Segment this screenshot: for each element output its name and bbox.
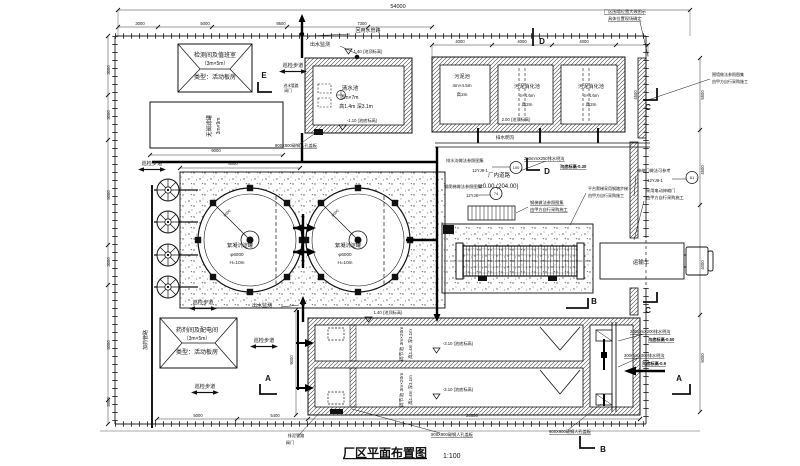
walkway-label: 巡检步道 [254,336,275,344]
elev: 2.00 (池顶标高) [502,116,531,123]
callout-atlas: 12YJ8 [466,193,479,198]
building-monitor-room-size: （3m×5m） [202,61,229,67]
building-chem-room-name: 药剂间及配电间 [176,326,218,334]
clearwater-size: 5m×7m [342,95,359,101]
dim: 5000 [106,340,111,350]
digester-1-h: 高2m [522,101,533,108]
eq-basin-2-size: 高1.4m 深3.1m [407,375,414,405]
dim: 8000 [228,161,238,166]
walkway-label: 巡检步道 [193,298,214,306]
dim-overall: 54000 [390,4,405,10]
dim: 3000 [106,65,111,75]
clarifier-1-h: H=10m [230,260,245,265]
note: 由甲方自行采购施工 [646,194,684,201]
note: 由甲方自行采购施工 [530,206,568,213]
digester-1-name: 污泥消化池 [514,82,540,90]
digester-1-size: 4×4.6m [519,93,535,98]
drain-elev: 沟底标高-0.50 [648,336,675,343]
clearwater-name: 清水池 [342,84,359,92]
sludge-tank-size: 4m×4.5m [452,83,471,88]
manhole-callout: 900X900碳钢人孔盖板 [549,428,592,435]
elev: -3.10 (池底标高) [443,386,474,393]
mud-outlet [330,409,343,414]
reuse-pipe-label: 回用水管路 [355,27,380,34]
monitor-point [301,301,306,306]
drain-callout: 200mmX200排水明沟 [630,328,671,335]
note: 采用电动伸缩门 [646,187,675,194]
dim: 9000 [289,355,294,365]
note: 钢梯做法参照图集 [530,199,564,206]
dim: 20000 [466,413,478,418]
manhole-callout: 900X900碳钢人孔盖板 [275,142,318,149]
dim: 7300 [357,21,367,26]
walkway-label: 巡检步道 [195,382,216,390]
walkway-arrow [191,390,197,395]
clarifier-1-dia: φ6000 [230,252,244,257]
dim: 3000 [135,21,145,26]
open-drain [435,143,650,147]
section-marker: A [676,374,682,383]
drain-elev: 沟底标高-0.9 [642,360,667,367]
section-marker: C [645,103,651,112]
building-chem-room-type: 类型：活动板房 [176,348,218,356]
dim: 5000 [200,21,210,26]
clarifier-2-name: 絮凝沉淀罐 [335,241,361,249]
eq-basin-1-size: 高1.4m 深3.1m [407,329,414,359]
valve-label: 阀门 [284,88,292,93]
section-marker: D [544,167,550,176]
digester-2-h: 高2m [586,101,597,108]
dim: 5400 [270,413,280,418]
walkway-arrow [250,344,256,349]
section-marker: B [600,445,606,454]
dim: 5000 [106,190,111,200]
filter-tank-name: 无阀滤罐 [205,115,213,138]
mud-pipe-label: 排泥管路 [288,432,306,439]
clarifier-1-name: 絮凝沉淀罐 [227,241,253,249]
dim: 9000 [211,148,221,153]
equalization-basins [308,318,640,415]
dim: 3000 [106,257,111,267]
walkway-label: 巡检步道 [283,61,304,69]
callout-drain-note: 排水沟做法参照图集 [446,157,485,164]
open-drain-label: 排水明沟 [496,134,515,141]
elev: 1.40 (池顶标高) [374,309,403,316]
note: 厂区围墙位置大致图示 [604,8,646,15]
walkway-arrow [279,69,285,74]
drain-callout: 300mmX300排水明沟 [624,352,665,359]
dim: 4500 [633,90,638,100]
dim: 4000 [579,39,589,44]
callout-atlas: 12YJ9-1 [472,168,488,173]
note: 具体位置现场确定 [608,15,642,22]
note: 平台爬梯采用钢踏步梯 [588,185,628,191]
filter-tank-size: 3m×9m [216,118,222,135]
callout-gate-note: 伸缩门做法可参考 [637,167,671,174]
elev: -1.10 (池底标高) [347,117,378,124]
outlet-monitor-label: 出水监测 [310,41,330,48]
note: 由甲方自行采购施工 [588,192,624,198]
drawing-scale: 1:100 [443,453,461,460]
eq-basin-2-name: 调节池 3m×20m [398,373,405,408]
dim: 3000 [106,110,111,120]
section-marker: D [539,37,545,46]
elev: -3.10 (池底标高) [443,340,474,347]
clearwater-depth: 高1.4m 深3.1m [339,103,373,110]
clarifier-2-h: H=10m [338,260,353,265]
dim: 2000 [106,397,111,407]
valve-label: 阀门 [286,439,294,446]
dim: 5000 [193,413,203,418]
building-monitor-room [178,44,252,92]
sludge-tank-h: 高2m [457,91,468,98]
callout-page: 100 [513,165,520,170]
road-label: 厂内道路 [488,171,511,179]
building-chem-room [160,318,237,368]
dim: 4500 [700,165,705,175]
dim: 5500 [700,90,705,100]
clearwater-tank [305,58,412,135]
dim: 9500 [276,21,286,26]
walkway-arrow [138,167,144,172]
walkway-arrow [213,390,219,395]
road-elev: ±0.00 (204.00) [480,184,519,190]
sludge-tank-name: 污泥池 [454,72,470,80]
walkway-label: 巡检步道 [142,159,163,167]
manhole-callout: 900X900碳钢人孔盖板 [431,431,474,438]
callout-page: 61 [690,175,695,180]
eq-basin-1-name: 调节池 3m×20m [398,327,405,362]
outlet-monitor-label: 出水监测 [252,302,272,309]
dim: 4000 [700,260,705,270]
dosing-pipe-label: 加药管路 [142,330,149,350]
section-marker: A [265,374,271,383]
dim: 4000 [517,39,527,44]
note: 围墙做法参照图集 [712,71,744,77]
callout-atlas: 12YJ9-1 [647,178,663,183]
drain-callout: 250mmX250排水明沟 [524,155,565,162]
drain-elev: 沟底标高-0.30 [560,163,587,170]
section-marker: E [261,71,267,80]
plant-layout-drawing: 5400030005000950073004000400040003000300… [0,0,800,466]
section-marker: C [645,306,651,315]
walkway-arrow [272,344,278,349]
truck-label: 运输车 [633,258,650,266]
dim: 5000 [700,353,705,363]
building-monitor-room-name: 检测间及值班室 [194,51,236,59]
section-marker: B [591,297,597,306]
walkway-arrow [160,167,166,172]
dim: 4000 [455,39,465,44]
callout-ladder-note: 钢爬梯做法参照图集 [444,183,483,190]
steel-ladder [468,206,515,220]
mud-pipe-label: 进水管路 [283,83,298,88]
callout-page: 74 [494,191,499,196]
building-monitor-room-type: 类型：活动板房 [194,73,236,81]
monitor-point [355,55,360,60]
building-chem-room-size: （3m×5m） [184,336,211,342]
drawing-title: 厂区平面布置图 [343,445,427,460]
digester-2-size: 4×4.6m [583,93,599,98]
note: 由甲方自行采购施工 [712,78,748,84]
site-plan-sheet: 5400030005000950073004000400040003000300… [0,0,800,466]
transport-truck [600,243,713,279]
elev: 1.40 (池顶标高) [354,48,383,55]
manhole [314,129,323,135]
digester-2-name: 污泥消化池 [578,82,604,90]
clarifier-2-dia: φ6000 [338,252,352,257]
